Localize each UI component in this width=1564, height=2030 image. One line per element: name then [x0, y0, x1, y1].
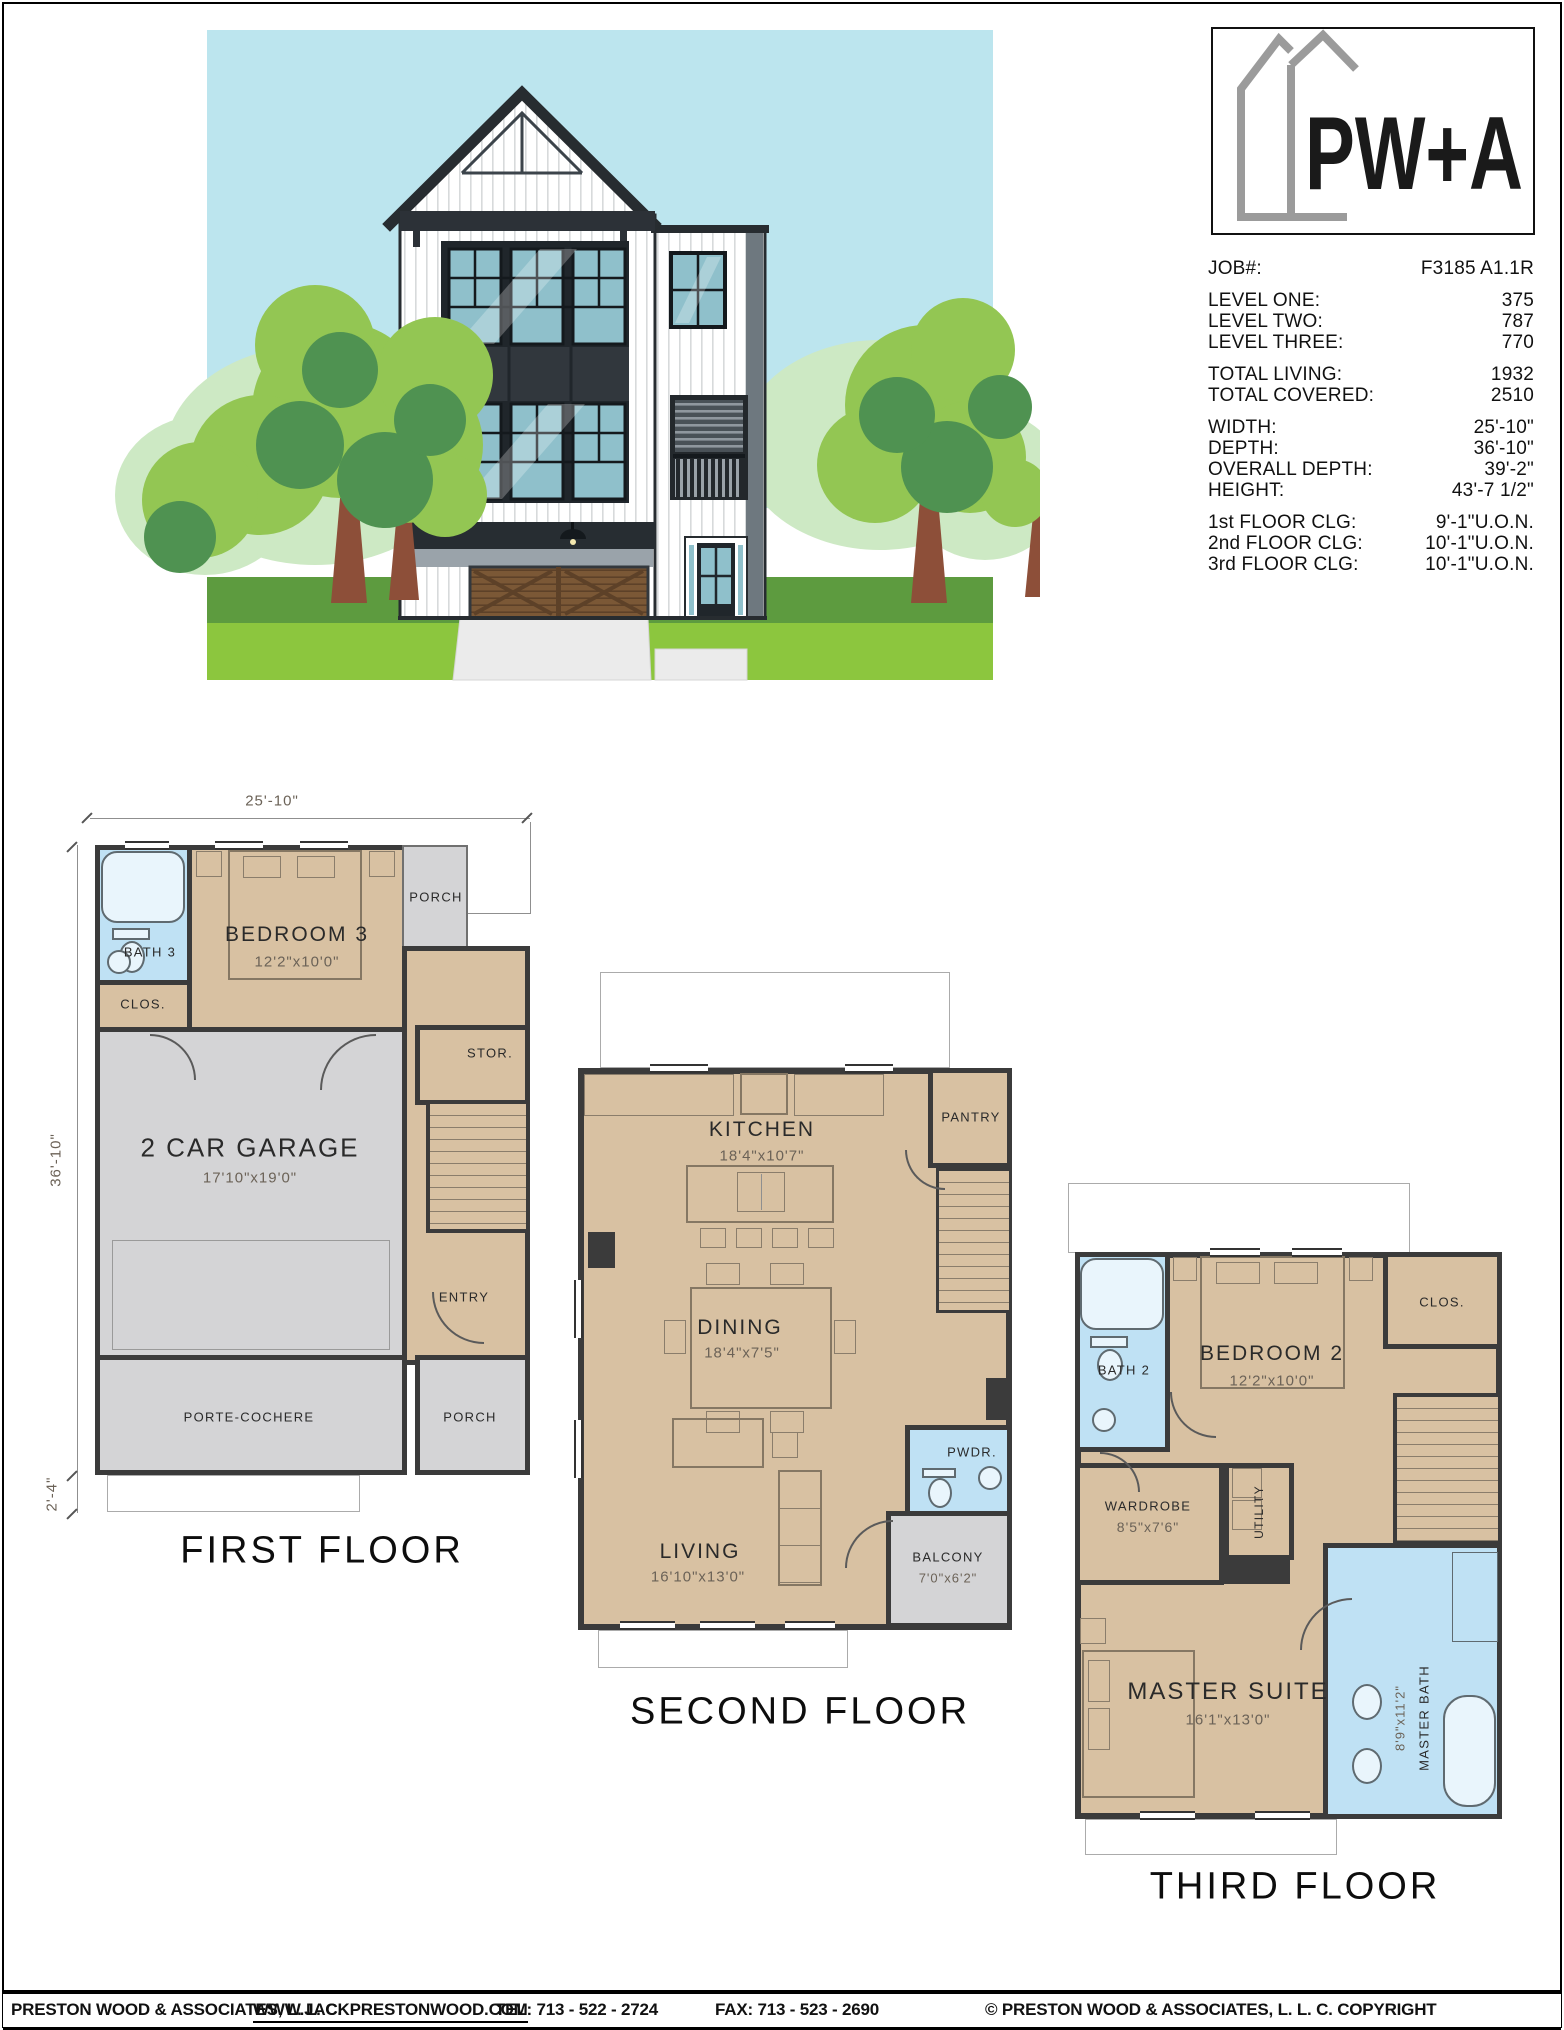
job-label: JOB#: [1208, 258, 1262, 279]
first-floor-title: FIRST FLOOR [180, 1530, 464, 1573]
project-info-table: JOB#: F3185 A1.1R LEVEL ONE:375 LEVEL TW… [1208, 258, 1534, 575]
pwa-logo: PW+A [1211, 27, 1535, 235]
chase-solid [986, 1378, 1012, 1420]
chair-symbol [770, 1411, 804, 1433]
chase-solid [1224, 1556, 1290, 1584]
sofa-symbol [672, 1418, 764, 1468]
dim-tick [66, 1470, 77, 1481]
porte-cochere-label: PORTE-COCHERE [184, 1410, 315, 1425]
counter-symbol [794, 1074, 884, 1116]
sink-divider [761, 1174, 762, 1210]
closet2-label: CLOS. [1419, 1295, 1465, 1310]
porch-bottom-label: PORCH [443, 1410, 496, 1425]
sink-symbol [1352, 1684, 1382, 1720]
window-symbol [650, 1064, 708, 1073]
balcony-size: 7'0"x6'2" [919, 1571, 978, 1586]
stool-symbol [772, 1228, 798, 1248]
bedroom2-label: BEDROOM 2 [1200, 1342, 1344, 1366]
level-two-value: 787 [1502, 311, 1534, 332]
dim-width-label: 25'-10" [245, 793, 299, 810]
window-symbol [700, 1621, 755, 1630]
slab-outline [1085, 1819, 1337, 1855]
level-three-value: 770 [1502, 332, 1534, 353]
kitchen-label: KITCHEN [709, 1118, 815, 1142]
chair-symbol [664, 1320, 686, 1354]
balcony-label: BALCONY [912, 1550, 983, 1565]
wardrobe-size: 8'5"x7'6" [1117, 1519, 1179, 1535]
overall-depth-label: OVERALL DEPTH: [1208, 459, 1373, 480]
footer-tel: TEL: 713 - 522 - 2724 [495, 2000, 658, 2020]
window-symbol [574, 1280, 583, 1338]
clg2-label: 2nd FLOOR CLG: [1208, 533, 1363, 554]
pillow-symbol [297, 856, 335, 878]
clg3-value: 10'-1"U.O.N. [1425, 554, 1534, 575]
roof-outline [1068, 1183, 1410, 1253]
tower-cap [651, 225, 769, 233]
nightstand-symbol [196, 851, 222, 877]
closet-label: CLOS. [120, 997, 166, 1012]
width-value: 25'-10" [1474, 417, 1534, 438]
window-symbol [845, 1064, 893, 1073]
balcony [670, 395, 748, 500]
level-one-value: 375 [1502, 290, 1534, 311]
dining-label: DINING [697, 1316, 783, 1340]
chase-solid [588, 1232, 615, 1268]
clg1-value: 9'-1"U.O.N. [1436, 512, 1534, 533]
clg1-label: 1st FLOOR CLG: [1208, 512, 1357, 533]
bathtub-symbol [101, 851, 185, 923]
living-size: 16'10"x13'0" [651, 1569, 745, 1586]
stairs [1393, 1393, 1502, 1545]
slab-outline [598, 1630, 848, 1668]
powder-label: PWDR. [947, 1445, 997, 1460]
dim-depth-label: 36'-10" [48, 1133, 65, 1187]
pillow-symbol [1088, 1660, 1110, 1702]
window-symbol [620, 1621, 675, 1630]
entry-label: ENTRY [439, 1290, 489, 1305]
chair-symbol [706, 1263, 740, 1285]
pillow-symbol [1274, 1262, 1318, 1284]
ext-line [468, 913, 531, 914]
job-value: F3185 A1.1R [1421, 258, 1534, 279]
dim-line [77, 1475, 78, 1513]
window-symbol [125, 841, 169, 850]
house-elevation-illustration [85, 25, 1040, 685]
window-symbol [1255, 1811, 1310, 1820]
ext-line [530, 822, 531, 914]
range-symbol [740, 1073, 788, 1115]
total-living-value: 1932 [1491, 364, 1534, 385]
nightstand-symbol [1349, 1257, 1373, 1281]
bath2-label: BATH 2 [1098, 1363, 1150, 1378]
window-symbol [1140, 1811, 1195, 1820]
footer-fax: FAX: 713 - 523 - 2690 [715, 2000, 879, 2020]
sink-symbol [1352, 1748, 1382, 1784]
kitchen-size: 18'4"x10'7" [720, 1148, 805, 1165]
wardrobe-label: WARDROBE [1105, 1499, 1191, 1514]
porch-top-label: PORCH [409, 890, 462, 905]
height-value: 43'-7 1/2" [1452, 480, 1534, 501]
toilet-bowl-symbol [928, 1478, 952, 1508]
window-symbol [215, 841, 263, 850]
second-floor-title: SECOND FLOOR [630, 1691, 970, 1734]
bathtub-symbol [1080, 1258, 1164, 1330]
total-covered-value: 2510 [1491, 385, 1534, 406]
garage-size: 17'10"x19'0" [203, 1170, 297, 1187]
level-three-label: LEVEL THREE: [1208, 332, 1343, 353]
nightstand-symbol [369, 851, 395, 877]
storage-label: STOR. [467, 1046, 513, 1061]
sink-symbol [1092, 1408, 1116, 1432]
dining-size: 18'4"x7'5" [704, 1345, 780, 1362]
fascia-band [400, 211, 655, 231]
stool-symbol [736, 1228, 762, 1248]
depth-value: 36'-10" [1474, 438, 1534, 459]
bedroom2-size: 12'2"x10'0" [1230, 1373, 1315, 1390]
stool-symbol [808, 1228, 834, 1248]
toilet-tank-symbol [922, 1468, 956, 1478]
window-symbol [1292, 1248, 1342, 1257]
counter-symbol [584, 1074, 734, 1116]
garage-label: 2 CAR GARAGE [140, 1133, 359, 1164]
level-one-label: LEVEL ONE: [1208, 290, 1320, 311]
dim-tick [66, 1508, 77, 1519]
toilet-tank-symbol [1090, 1336, 1128, 1348]
nightstand-symbol [1080, 1618, 1106, 1644]
toilet-tank-symbol [112, 928, 150, 940]
chair-symbol [770, 1263, 804, 1285]
width-label: WIDTH: [1208, 417, 1277, 438]
master-suite-size: 16'1"x13'0" [1186, 1712, 1271, 1729]
living-label: LIVING [660, 1540, 741, 1564]
overall-depth-value: 39'-2" [1484, 459, 1534, 480]
stairs [426, 1100, 530, 1233]
stairs [936, 1168, 1012, 1313]
footer-website-link: WWW.JACKPRESTONWOOD.COM [253, 2000, 528, 2023]
pillow-symbol [243, 856, 281, 878]
utility-label: UTILITY [1252, 1485, 1266, 1539]
sink-symbol [978, 1466, 1002, 1490]
room-balcony [886, 1511, 1012, 1628]
bath3-label: BATH 3 [124, 945, 176, 960]
level-two-label: LEVEL TWO: [1208, 311, 1323, 332]
tower-side-shade [746, 233, 763, 616]
master-suite-label: MASTER SUITE [1127, 1678, 1328, 1706]
logo-text: PW+A [1305, 96, 1523, 212]
roof-outline [600, 972, 950, 1068]
height-label: HEIGHT: [1208, 480, 1284, 501]
clg2-value: 10'-1"U.O.N. [1425, 533, 1534, 554]
master-bath-label: MASTER BATH [1417, 1665, 1432, 1771]
clg3-label: 3rd FLOOR CLG: [1208, 554, 1359, 575]
total-living-label: TOTAL LIVING: [1208, 364, 1342, 385]
third-floor-title: THIRD FLOOR [1150, 1866, 1441, 1909]
dim-offset-label: 2'-4" [44, 1477, 61, 1512]
tower-window [671, 253, 725, 327]
entry-door [685, 537, 747, 618]
depth-label: DEPTH: [1208, 438, 1279, 459]
pillow-symbol [1088, 1708, 1110, 1750]
shower-symbol [1452, 1552, 1498, 1642]
title-block-footer: PRESTON WOOD & ASSOCIATES, L. L. C. WWW.… [3, 1990, 1561, 2030]
master-bath-size: 8'9"x11'2" [1393, 1685, 1408, 1751]
bathtub-symbol [1443, 1695, 1496, 1807]
bedroom3-label: BEDROOM 3 [225, 923, 369, 947]
bedroom3-size: 12'2"x10'0" [255, 954, 340, 971]
stool-symbol [700, 1228, 726, 1248]
dim-line [90, 818, 530, 819]
footer-copyright: © PRESTON WOOD & ASSOCIATES, L. L. C. CO… [985, 2000, 1436, 2020]
window-symbol [1210, 1248, 1260, 1257]
pillow-symbol [1216, 1262, 1260, 1284]
dim-tick [66, 841, 77, 852]
info-row-job: JOB#: F3185 A1.1R [1208, 258, 1534, 279]
chair-symbol [834, 1320, 856, 1354]
side-table-symbol [772, 1432, 798, 1458]
window-symbol [785, 1621, 835, 1630]
window-symbol [574, 1420, 583, 1478]
plan-sheet: PW+A JOB#: F3185 A1.1R LEVEL ONE:375 LEV… [0, 0, 1564, 2030]
nightstand-symbol [1173, 1257, 1197, 1281]
pantry-label: PANTRY [941, 1110, 1000, 1125]
bookcase-symbol [778, 1470, 822, 1586]
room-storage [415, 1025, 530, 1105]
garage-door-outline [112, 1240, 390, 1350]
total-covered-label: TOTAL COVERED: [1208, 385, 1374, 406]
dim-line [77, 845, 78, 1475]
slab-outline [107, 1475, 360, 1512]
window-symbol [300, 841, 348, 850]
